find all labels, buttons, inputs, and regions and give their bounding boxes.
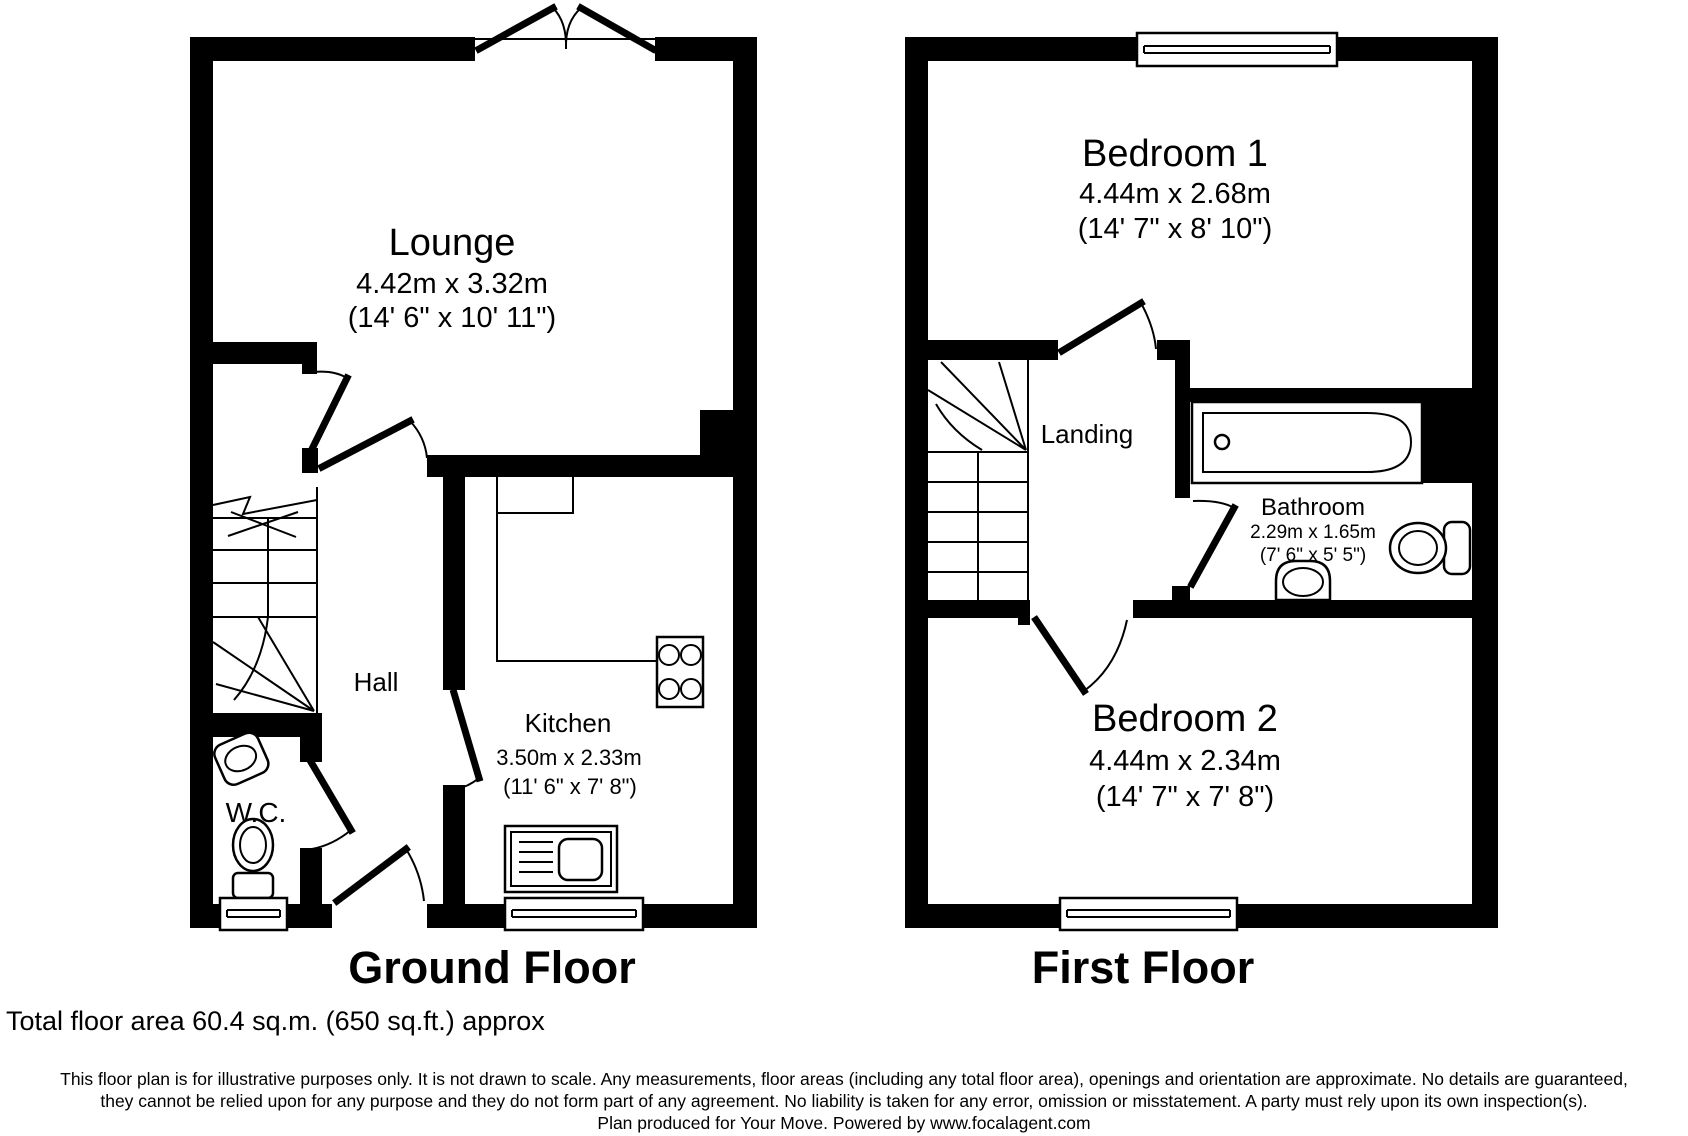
- kitchen-door: [454, 693, 479, 789]
- bedroom2-label: Bedroom 2: [1092, 698, 1278, 740]
- floorplan-page: Lounge 4.42m x 3.32m (14' 6" x 10' 11") …: [0, 0, 1688, 1136]
- bathroom-metric: 2.29m x 1.65m: [1250, 522, 1376, 543]
- ground-floor-labels: Lounge 4.42m x 3.32m (14' 6" x 10' 11") …: [226, 222, 642, 828]
- kitchen-sink: [505, 826, 617, 892]
- floorplan-canvas: Lounge 4.42m x 3.32m (14' 6" x 10' 11") …: [0, 0, 1688, 1136]
- bedroom1-window: [1137, 33, 1337, 66]
- wc-label: W.C.: [226, 797, 287, 828]
- bedroom2-imperial: (14' 7" x 7' 8"): [1096, 781, 1274, 813]
- captions: Ground Floor First Floor Total floor are…: [6, 942, 1628, 1133]
- lounge-imperial: (14' 6" x 10' 11"): [348, 302, 556, 334]
- wc-door: [311, 762, 351, 849]
- bedroom2-window: [1060, 898, 1237, 930]
- bedroom1-door: [1062, 303, 1156, 351]
- kitchen-window: [505, 898, 643, 930]
- wc-basin: [211, 730, 271, 788]
- bathroom-basin: [1276, 561, 1330, 600]
- bedroom2-metric: 4.44m x 2.34m: [1089, 745, 1281, 777]
- bedroom1-imperial: (14' 7" x 8' 10"): [1078, 213, 1272, 245]
- wc-toilet: [233, 819, 273, 898]
- bedroom1-label: Bedroom 1: [1082, 133, 1268, 175]
- ground-floor-title: Ground Floor: [348, 942, 635, 993]
- kitchen-metric: 3.50m x 2.33m: [496, 745, 642, 770]
- front-door: [337, 849, 424, 901]
- bedroom1-metric: 4.44m x 2.68m: [1079, 178, 1271, 210]
- disclaimer-line-2: they cannot be relied upon for any purpo…: [100, 1091, 1587, 1111]
- kitchen-counter: [497, 477, 657, 661]
- hall-label: Hall: [354, 667, 399, 697]
- bathroom-door: [1192, 501, 1234, 584]
- disclaimer-line-1: This floor plan is for illustrative purp…: [60, 1069, 1628, 1089]
- first-floor-plan: Bedroom 1 4.44m x 2.68m (14' 7" x 8' 10"…: [905, 33, 1498, 930]
- bathroom-toilet: [1390, 522, 1470, 574]
- ground-stairs: [213, 487, 317, 713]
- disclaimer-line-3: Plan produced for Your Move. Powered by …: [597, 1113, 1090, 1133]
- bedroom2-door: [1036, 620, 1127, 691]
- bathroom-imperial: (7' 6" x 5' 5"): [1260, 545, 1366, 566]
- kitchen-hob: [657, 637, 703, 707]
- first-floor-title: First Floor: [1032, 942, 1255, 993]
- ground-floor-plan: Lounge 4.42m x 3.32m (14' 6" x 10' 11") …: [190, 8, 757, 930]
- kitchen-label: Kitchen: [525, 708, 612, 738]
- french-doors: [475, 8, 655, 49]
- first-floor-stairs: [928, 360, 1028, 600]
- kitchen-imperial: (11' 6" x 7' 8"): [503, 774, 637, 799]
- wc-window: [220, 898, 287, 930]
- bathroom-label: Bathroom: [1261, 494, 1365, 521]
- landing-label: Landing: [1041, 419, 1134, 449]
- bathtub: [1192, 402, 1422, 483]
- lounge-label: Lounge: [389, 222, 516, 264]
- ground-floor-walls: [190, 37, 757, 928]
- lounge-metric: 4.42m x 3.32m: [356, 268, 548, 300]
- hall-door: [322, 421, 427, 467]
- lounge-door: [313, 372, 347, 447]
- total-floor-area: Total floor area 60.4 sq.m. (650 sq.ft.)…: [6, 1006, 545, 1036]
